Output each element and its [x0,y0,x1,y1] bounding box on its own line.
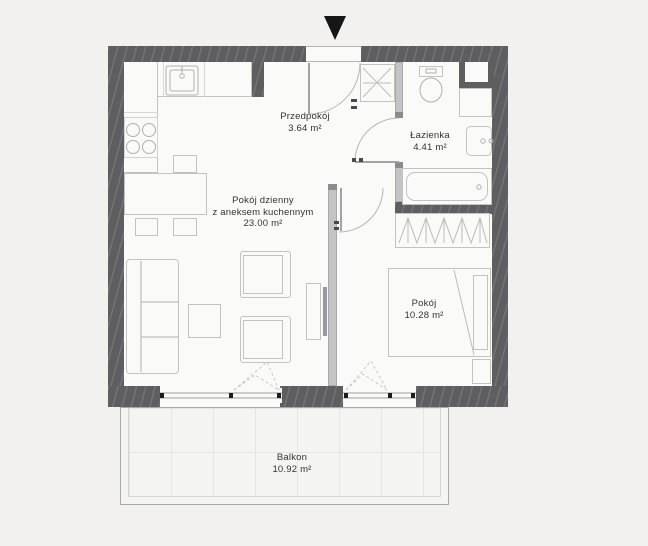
coffee-table [188,304,221,338]
dining-table [124,173,207,215]
room-subtitle: z aneksem kuchennym [213,207,314,219]
floor-plan: Przedpokój 3.64 m² Łazienka 4.41 m² Pokó… [0,0,648,546]
balcony-window-bedroom [343,388,416,403]
tv [323,287,327,336]
room-area: 23.00 m² [213,218,314,230]
room-name: Pokój dzienny [213,195,314,207]
room-label-balcony: Balkon 10.92 m² [272,452,311,475]
sofa [126,259,179,374]
bathtub-basin [406,172,488,201]
room-area: 3.64 m² [280,123,330,135]
armchair [240,251,291,298]
dining-chair [173,155,197,173]
wall-top-right [361,46,508,62]
armchair-seat [243,255,283,294]
washbasin [466,126,492,156]
partition-cap [395,112,403,118]
wall-kitchen-stub [252,62,264,97]
balcony-window-living [160,388,282,403]
room-label-bathroom: Łazienka 4.41 m² [410,130,450,153]
washing-machine [459,88,492,117]
tv-sideboard [306,283,321,340]
room-area: 10.28 m² [404,310,443,322]
hallway-wardrobe [360,64,395,102]
room-label-hallway: Przedpokój 3.64 m² [280,111,330,134]
wall-top-left [108,46,306,62]
ventilation-shaft [459,62,494,88]
bed-pillow [473,275,488,350]
counter-division [163,62,164,97]
bathtub [402,168,492,205]
room-name: Pokój [404,298,443,310]
wall-bottom-right-segment [416,386,508,407]
entrance-arrow-icon [324,16,346,40]
counter-division [124,112,158,113]
room-name: Balkon [272,452,311,464]
armchair [240,316,291,363]
dining-chair [173,218,197,236]
entrance-threshold [306,46,361,62]
partition-cap [328,184,337,190]
armchair-seat [243,320,283,359]
stove [124,117,158,158]
room-name: Łazienka [410,130,450,142]
partition-bathroom-upper [395,62,403,118]
counter-division [204,62,205,97]
wall-bottom-middle-segment [280,386,343,407]
room-name: Przedpokój [280,111,330,123]
wall-bottom-left-segment [108,386,160,407]
dining-chair [135,218,158,236]
toilet-tank [419,66,443,77]
room-label-living: Pokój dzienny z aneksem kuchennym 23.00 … [213,195,314,230]
wall-left [108,46,124,407]
room-label-bedroom: Pokój 10.28 m² [404,298,443,321]
room-area: 10.92 m² [272,464,311,476]
partition-living-bedroom [328,184,337,386]
bedroom-wardrobe [395,213,490,248]
room-area: 4.41 m² [410,142,450,154]
nightstand [472,359,491,384]
wall-right [492,46,508,407]
